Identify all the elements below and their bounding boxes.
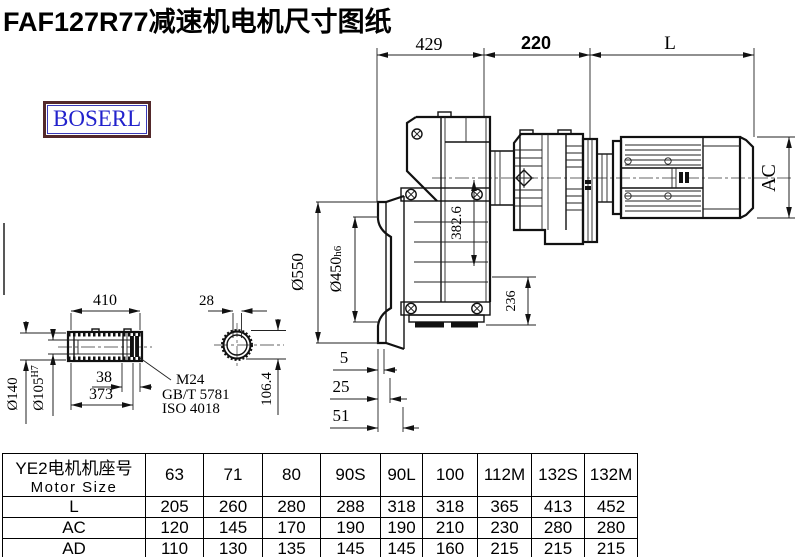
table-cell: 160 xyxy=(423,539,478,557)
table-cell: 190 xyxy=(321,518,381,539)
table-cell: 135 xyxy=(263,539,321,557)
table-cell: 110 xyxy=(146,539,204,557)
label-M24: M24 xyxy=(176,372,205,388)
centerlines xyxy=(4,178,792,368)
row-label-L: L xyxy=(3,497,146,518)
table-cell: 215 xyxy=(532,539,585,557)
table-cell: 318 xyxy=(381,497,423,518)
table-row-L: L 205 260 280 288 318 318 365 413 452 xyxy=(3,497,638,518)
dim-236: 236 xyxy=(504,291,519,312)
dim-25: 25 xyxy=(333,377,350,396)
table-cell: 452 xyxy=(585,497,638,518)
technical-drawing: 429 220 L xyxy=(0,0,800,455)
row-label-AC: AC xyxy=(3,518,146,539)
table-row-AC: AC 120 145 170 190 190 210 230 280 280 xyxy=(3,518,638,539)
table-cell: 280 xyxy=(532,518,585,539)
motor-size-table: YE2电机机座号 Motor Size 63 71 80 90S 90L 100… xyxy=(2,453,638,557)
dim-28: 28 xyxy=(199,293,214,309)
row-label-AD: AD xyxy=(3,539,146,557)
drawing-page: FAF127R77减速机电机尺寸图纸 BOSERL 429 220 L xyxy=(0,0,800,557)
motor-size-header-cn: YE2电机机座号 xyxy=(3,454,145,479)
table-cell: 170 xyxy=(263,518,321,539)
dim-AC: AC xyxy=(758,164,780,192)
table-cell: 215 xyxy=(585,539,638,557)
table-cell: 280 xyxy=(585,518,638,539)
col-112M: 112M xyxy=(478,454,532,497)
label-ISO4018: ISO 4018 xyxy=(162,401,220,417)
dim-140: Ø140 xyxy=(5,377,21,410)
dim-373: 373 xyxy=(89,386,113,403)
dim-38: 38 xyxy=(96,369,112,386)
r-stage-gearbox xyxy=(490,130,597,244)
table-cell: 413 xyxy=(532,497,585,518)
dim-450h6: Ø450h6 xyxy=(328,245,345,292)
col-71: 71 xyxy=(204,454,263,497)
hollow-shaft-detail: 410 Ø140 Ø105H7 38 373 M24 GB/T 5781 ISO xyxy=(5,292,230,424)
table-cell: 145 xyxy=(381,539,423,557)
col-90S: 90S xyxy=(321,454,381,497)
table-cell: 318 xyxy=(423,497,478,518)
vertical-dimensions: AC 382.6 236 Ø550 Ø450h6 xyxy=(288,137,795,343)
table-cell: 130 xyxy=(204,539,263,557)
table-cell: 145 xyxy=(204,518,263,539)
flange-offset-dimensions: 5 25 51 xyxy=(330,348,419,432)
dim-51: 51 xyxy=(333,406,350,425)
table-header-row: YE2电机机座号 Motor Size 63 71 80 90S 90L 100… xyxy=(3,454,638,497)
dim-550: Ø550 xyxy=(288,253,307,291)
table-cell: 215 xyxy=(478,539,532,557)
table-cell: 210 xyxy=(423,518,478,539)
dim-410: 410 xyxy=(93,292,117,309)
col-132M: 132M xyxy=(585,454,638,497)
table-cell: 365 xyxy=(478,497,532,518)
col-132S: 132S xyxy=(532,454,585,497)
motor-size-header-en: Motor Size xyxy=(3,479,145,496)
motor-size-header-cell: YE2电机机座号 Motor Size xyxy=(3,454,146,497)
motor xyxy=(597,137,753,218)
col-80: 80 xyxy=(263,454,321,497)
dim-L: L xyxy=(664,33,676,54)
table-cell: 190 xyxy=(381,518,423,539)
table-cell: 288 xyxy=(321,497,381,518)
table-cell: 120 xyxy=(146,518,204,539)
dim-5: 5 xyxy=(340,348,349,367)
output-flange xyxy=(378,196,404,349)
dim-105H7: Ø105H7 xyxy=(30,365,47,411)
table-cell: 260 xyxy=(204,497,263,518)
table-cell: 145 xyxy=(321,539,381,557)
table-cell: 280 xyxy=(263,497,321,518)
col-63: 63 xyxy=(146,454,204,497)
col-100: 100 xyxy=(423,454,478,497)
table-cell: 230 xyxy=(478,518,532,539)
col-90L: 90L xyxy=(381,454,423,497)
table-cell: 205 xyxy=(146,497,204,518)
dim-382-6: 382.6 xyxy=(449,206,465,240)
dim-220: 220 xyxy=(521,33,551,53)
gear-housing xyxy=(401,112,490,325)
dim-106-4: 106.4 xyxy=(259,372,275,406)
table-row-AD: AD 110 130 135 145 145 160 215 215 215 xyxy=(3,539,638,557)
dim-429: 429 xyxy=(416,34,443,54)
